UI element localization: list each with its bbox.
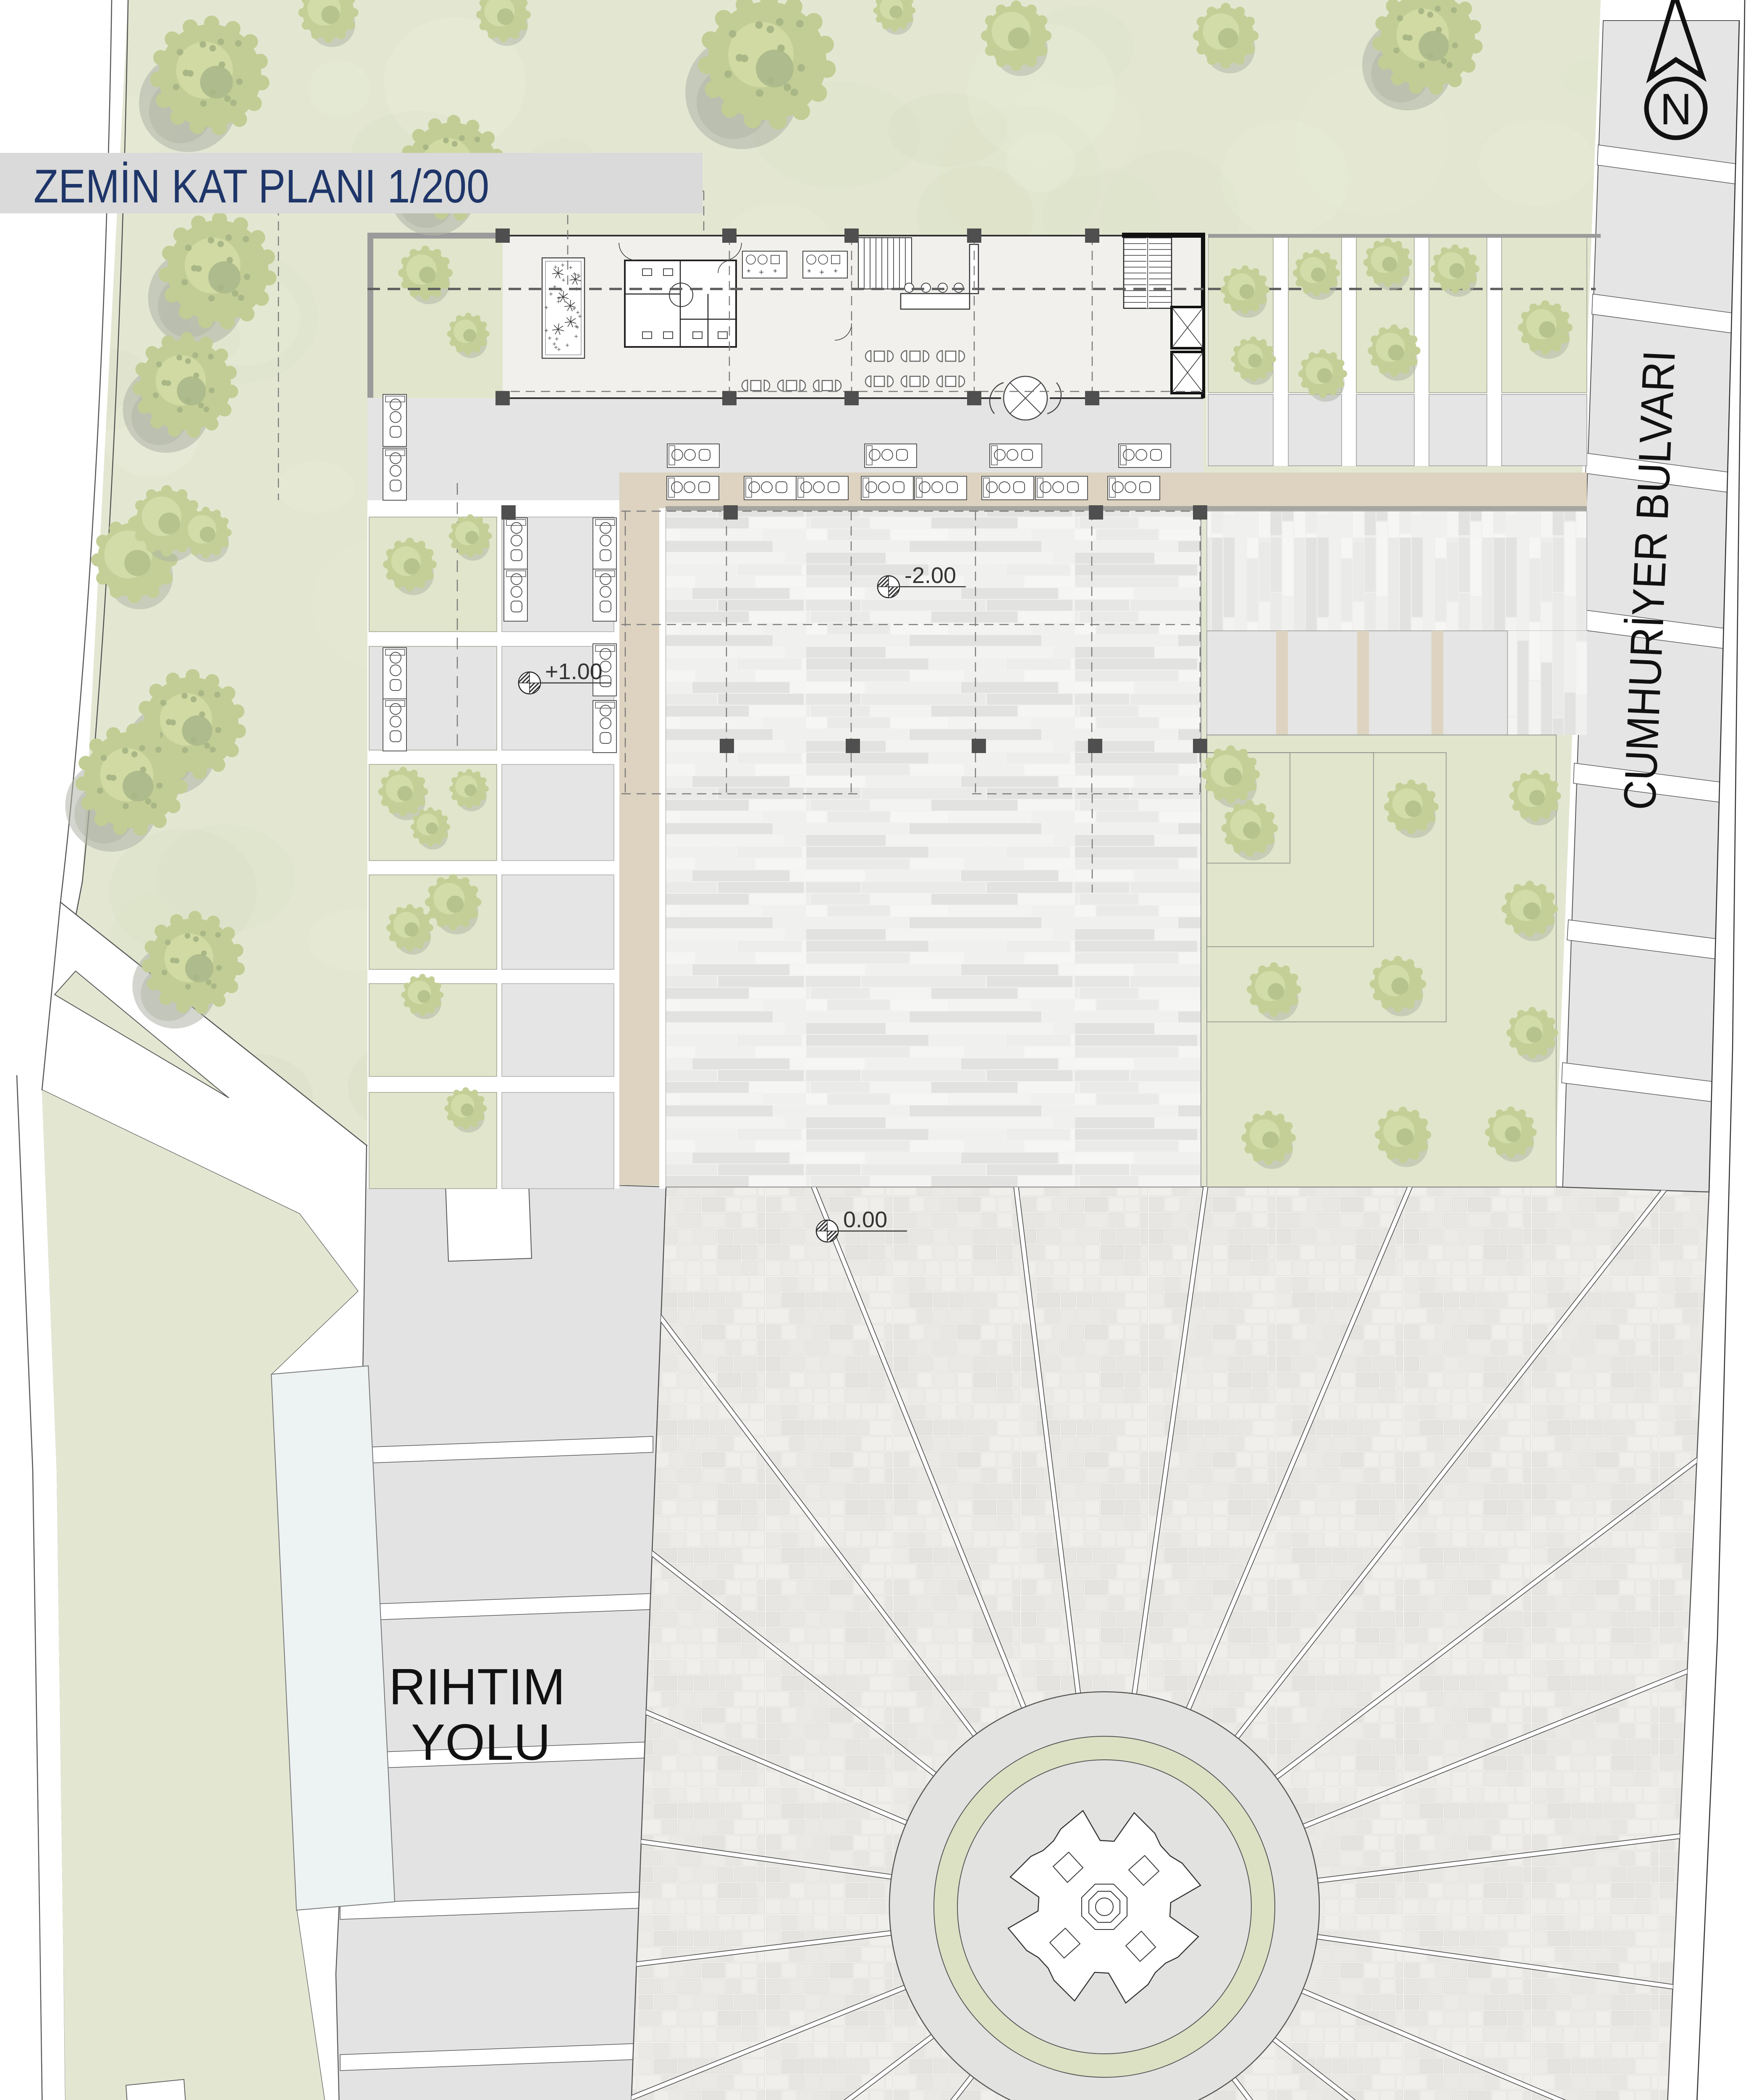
svg-text:YOLU: YOLU — [411, 1714, 551, 1771]
svg-text:ZEMİN KAT PLANI 1/200: ZEMİN KAT PLANI 1/200 — [34, 160, 489, 213]
svg-text:N: N — [1660, 85, 1692, 134]
svg-text:-2.00: -2.00 — [904, 563, 956, 588]
svg-text:RIHTIM: RIHTIM — [389, 1658, 565, 1715]
svg-text:+1.00: +1.00 — [545, 659, 603, 684]
svg-text:0.00: 0.00 — [843, 1207, 887, 1232]
